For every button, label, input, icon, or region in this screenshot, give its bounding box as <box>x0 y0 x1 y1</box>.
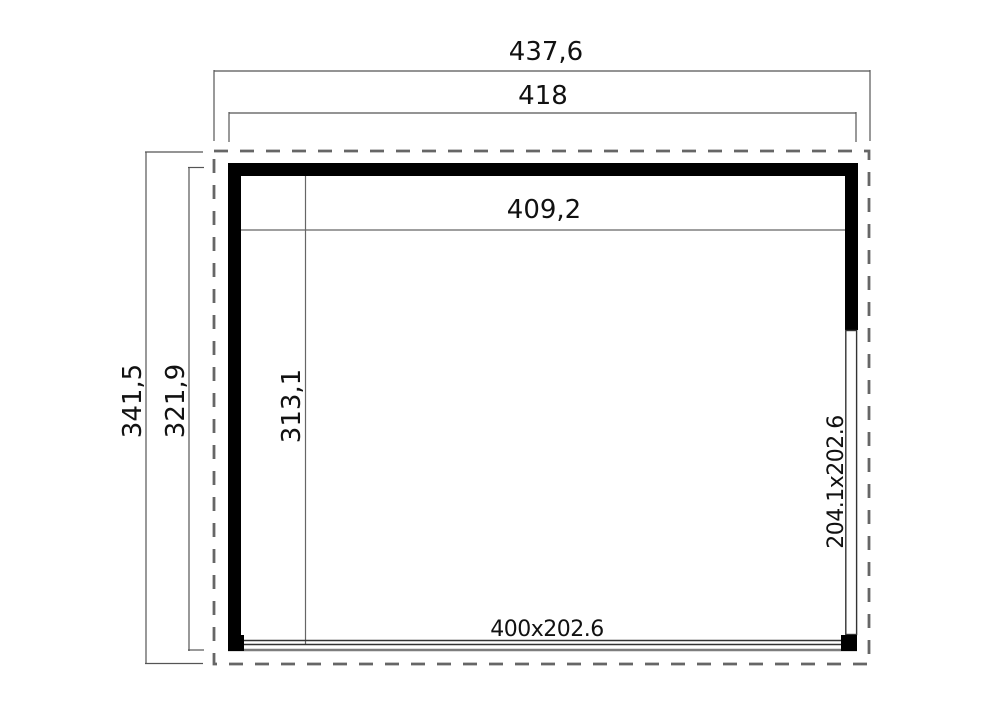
walls <box>228 163 858 651</box>
dim-label-outer-width: 437,6 <box>509 37 583 67</box>
dim-label-interior-depth: 313,1 <box>277 369 307 443</box>
wall-left <box>228 163 241 651</box>
wall-right-upper <box>845 163 858 330</box>
dim-label-interior-width: 409,2 <box>507 195 581 225</box>
post-bottom-left <box>228 635 244 651</box>
roof-outline <box>214 151 869 664</box>
dim-label-front-opening: 400x202.6 <box>490 617 604 642</box>
dim-label-side-opening: 204.1x202.6 <box>824 415 849 548</box>
floor-plan-canvas: 437,6 418 409,2 341,5 321,9 313,1 204.1x… <box>0 0 1000 707</box>
dim-line-frame-width <box>229 112 856 142</box>
wall-top <box>228 163 858 176</box>
dim-label-frame-width: 418 <box>518 81 568 111</box>
post-bottom-right <box>841 635 857 651</box>
dim-label-outer-depth: 341,5 <box>118 364 148 438</box>
dim-label-frame-depth: 321,9 <box>161 364 191 438</box>
floor-plan-drawing: 437,6 418 409,2 341,5 321,9 313,1 204.1x… <box>0 0 1000 707</box>
